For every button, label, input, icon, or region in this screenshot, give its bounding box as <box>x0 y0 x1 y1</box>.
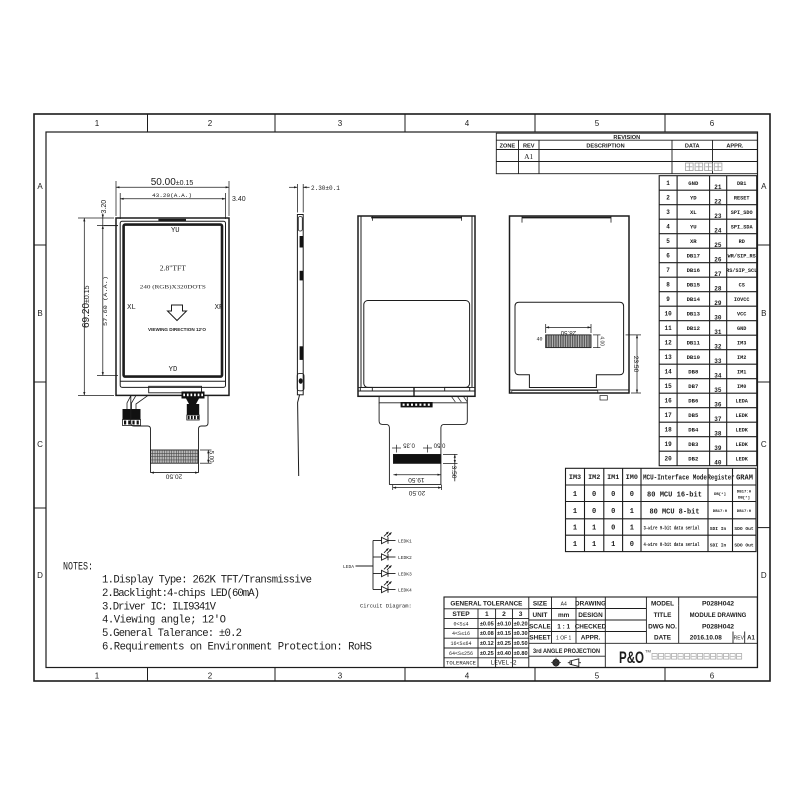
svg-text:3.50: 3.50 <box>450 466 457 479</box>
svg-text:19.50: 19.50 <box>408 476 425 483</box>
svg-text:DB17:0: DB17:0 <box>737 510 752 514</box>
svg-text:B: B <box>37 309 42 318</box>
svg-text:0: 0 <box>611 491 615 499</box>
svg-text:1: 1 <box>573 541 577 549</box>
svg-text:4: 4 <box>465 672 470 681</box>
svg-text:1: 1 <box>95 119 100 128</box>
svg-text:16<S≤64: 16<S≤64 <box>450 641 471 647</box>
svg-text:2: 2 <box>208 672 213 681</box>
svg-text:8: 8 <box>666 282 670 289</box>
svg-text:20: 20 <box>664 456 672 463</box>
svg-text:5: 5 <box>666 238 670 245</box>
svg-text:36: 36 <box>714 402 722 409</box>
svg-text:DB1: DB1 <box>737 181 746 187</box>
svg-text:1: 1 <box>630 525 634 533</box>
svg-text:DB10: DB10 <box>687 354 701 361</box>
svg-text:38: 38 <box>714 431 722 438</box>
svg-text:1: 1 <box>573 491 577 499</box>
svg-text:DB17:0: DB17:0 <box>713 510 728 514</box>
svg-text:1: 1 <box>485 611 489 618</box>
svg-text:IM0: IM0 <box>737 384 746 390</box>
svg-text:3: 3 <box>519 611 523 618</box>
svg-text:LEDK: LEDK <box>735 427 748 433</box>
svg-text:2.Backlight:4-chips LED(60mA): 2.Backlight:4-chips LED(60mA) <box>102 588 260 600</box>
svg-text:SCALE: SCALE <box>529 623 551 630</box>
svg-text:DATA: DATA <box>685 143 700 149</box>
svg-text:37: 37 <box>714 416 722 423</box>
svg-text:40: 40 <box>536 337 542 343</box>
svg-text:1 : 1: 1 : 1 <box>557 623 570 630</box>
svg-text:35: 35 <box>714 387 722 394</box>
svg-text:SIZE: SIZE <box>533 601 548 608</box>
svg-text:XL: XL <box>127 304 136 312</box>
svg-text:CS: CS <box>739 282 745 288</box>
svg-text:P028H042: P028H042 <box>702 601 734 608</box>
svg-text:30: 30 <box>714 315 722 322</box>
svg-text:±0.50: ±0.50 <box>514 641 528 647</box>
svg-text:YU: YU <box>171 227 180 235</box>
svg-text:4.Viewing angle; 12'O: 4.Viewing angle; 12'O <box>102 615 226 627</box>
svg-text:±0.80: ±0.80 <box>514 651 528 657</box>
svg-text:IM3: IM3 <box>569 474 581 482</box>
svg-text:26: 26 <box>714 257 722 264</box>
svg-text:XR: XR <box>215 304 224 312</box>
svg-text:NOTES:: NOTES: <box>63 562 93 574</box>
svg-text:13: 13 <box>664 354 672 361</box>
svg-text:YD: YD <box>169 366 178 374</box>
svg-text:P028H042: P028H042 <box>702 623 734 630</box>
svg-text:23: 23 <box>714 213 722 220</box>
svg-text:DB4: DB4 <box>688 426 699 433</box>
svg-text:0: 0 <box>630 541 634 549</box>
svg-text:3: 3 <box>666 209 670 216</box>
svg-text:5.00: 5.00 <box>207 451 213 463</box>
svg-text:DB6: DB6 <box>688 397 699 404</box>
svg-text:±0.30: ±0.30 <box>514 631 528 637</box>
svg-text:DB12: DB12 <box>687 325 701 332</box>
svg-text:28.50: 28.50 <box>560 329 576 336</box>
svg-text:0<S≤4: 0<S≤4 <box>453 621 468 627</box>
svg-text:DB13: DB13 <box>687 310 701 317</box>
svg-text:1: 1 <box>666 180 670 187</box>
svg-text:IM3: IM3 <box>737 340 746 346</box>
svg-text:1: 1 <box>611 541 615 549</box>
svg-text:DWG NO.: DWG NO. <box>648 623 677 630</box>
svg-text:20.50: 20.50 <box>408 489 425 496</box>
svg-text:3-wire 9-bit data serial: 3-wire 9-bit data serial <box>644 526 701 532</box>
svg-text:14: 14 <box>664 369 672 376</box>
svg-text:3.Driver IC: ILI9341V: 3.Driver IC: ILI9341V <box>102 601 217 613</box>
svg-text:1: 1 <box>592 541 596 549</box>
svg-text:33: 33 <box>714 358 722 365</box>
svg-text:57.60 (A.A.): 57.60 (A.A.) <box>102 276 109 326</box>
svg-text:IM1: IM1 <box>607 474 619 482</box>
svg-text:±0.15: ±0.15 <box>497 631 511 637</box>
svg-text:MCU-Interface Mode: MCU-Interface Mode <box>643 475 707 483</box>
svg-text:12: 12 <box>664 340 672 347</box>
svg-text:UNIT: UNIT <box>533 612 548 619</box>
svg-text:YD: YD <box>690 194 697 201</box>
svg-text:3.20: 3.20 <box>101 200 108 214</box>
svg-text:1: 1 <box>95 672 100 681</box>
svg-text:DB17:0: DB17:0 <box>737 491 752 495</box>
svg-text:LEDK3: LEDK3 <box>398 571 412 577</box>
svg-text:1.Display Type: 262K TFT/Trans: 1.Display Type: 262K TFT/Transmissive <box>102 575 312 587</box>
svg-text:0: 0 <box>611 525 615 533</box>
svg-text:GND: GND <box>737 326 746 332</box>
svg-text:C: C <box>761 440 767 449</box>
svg-text:DB3: DB3 <box>688 441 699 448</box>
svg-text:±0.12: ±0.12 <box>480 641 494 647</box>
svg-text:4<S≤16: 4<S≤16 <box>452 631 470 637</box>
svg-text:24: 24 <box>714 228 722 235</box>
svg-text:±0.40: ±0.40 <box>497 651 511 657</box>
svg-text:DRAWING: DRAWING <box>575 601 606 608</box>
svg-text:VCC: VCC <box>737 311 746 317</box>
svg-text:0: 0 <box>592 491 596 499</box>
svg-text:0: 0 <box>611 508 615 516</box>
svg-text:SPI_SDA: SPI_SDA <box>731 224 754 230</box>
svg-text:IOVCC: IOVCC <box>734 297 750 303</box>
svg-text:REV: REV <box>523 143 535 149</box>
svg-text:LEDK: LEDK <box>735 442 748 448</box>
svg-text:28: 28 <box>714 286 722 293</box>
svg-text:5.General Talerance: ±0.2: 5.General Talerance: ±0.2 <box>102 628 242 640</box>
svg-text:22: 22 <box>714 199 722 206</box>
svg-text:VIEWING DIRECTION 12’O: VIEWING DIRECTION 12’O <box>148 327 206 332</box>
svg-text:DB11: DB11 <box>687 339 701 346</box>
svg-text:1: 1 <box>573 525 577 533</box>
svg-text:4: 4 <box>666 224 670 231</box>
svg-text:4-wire 8-bit data serial: 4-wire 8-bit data serial <box>644 542 701 548</box>
svg-text:CHECKED: CHECKED <box>575 623 607 630</box>
svg-text:3rd ANGLE PROJECTION: 3rd ANGLE PROJECTION <box>533 648 600 655</box>
svg-text:1 OF 1: 1 OF 1 <box>556 636 572 642</box>
svg-text:2016.10.08: 2016.10.08 <box>690 635 722 642</box>
svg-text:29: 29 <box>714 300 722 307</box>
svg-text:80 MCU 8-bit: 80 MCU 8-bit <box>650 508 700 516</box>
svg-text:DESIGN: DESIGN <box>578 612 603 619</box>
svg-text:LEDA: LEDA <box>735 398 748 404</box>
svg-text:9: 9 <box>666 296 670 303</box>
svg-text:19: 19 <box>664 441 672 448</box>
svg-text:4: 4 <box>465 119 470 128</box>
svg-text:DB5: DB5 <box>688 412 699 419</box>
svg-text:LEDK: LEDK <box>735 413 748 419</box>
svg-text:TOLERANCE: TOLERANCE <box>446 661 476 667</box>
svg-text:LEDA: LEDA <box>343 564 354 570</box>
svg-text:DB16: DB16 <box>687 267 701 274</box>
svg-text:SDO Out: SDO Out <box>734 542 754 548</box>
svg-text:2.8"TFT: 2.8"TFT <box>160 264 186 273</box>
svg-text:MODULE DRAWING: MODULE DRAWING <box>690 613 747 619</box>
svg-text:DB2: DB2 <box>688 455 699 462</box>
svg-text:10: 10 <box>664 311 672 318</box>
svg-text:IM2: IM2 <box>737 355 746 361</box>
svg-text:64<S≤256: 64<S≤256 <box>449 651 473 657</box>
svg-text:D: D <box>761 571 767 580</box>
svg-text:LEDK2: LEDK2 <box>398 555 412 561</box>
svg-text:APPR.: APPR. <box>726 143 744 149</box>
svg-text:LEDK4: LEDK4 <box>398 587 412 593</box>
svg-text:31: 31 <box>714 329 722 336</box>
svg-text:2: 2 <box>208 119 213 128</box>
svg-text:DB8: DB8 <box>688 368 699 375</box>
svg-text:RS/SIP_SCL: RS/SIP_SCL <box>726 268 757 274</box>
svg-text:3: 3 <box>338 672 343 681</box>
svg-text:23.50: 23.50 <box>632 356 639 373</box>
svg-text:Register: Register <box>708 475 735 483</box>
svg-text:16: 16 <box>664 398 672 405</box>
svg-text:XR: XR <box>690 238 697 245</box>
svg-text:SHEET: SHEET <box>529 635 550 642</box>
svg-text:A: A <box>37 182 43 191</box>
svg-text:0.50: 0.50 <box>433 442 445 448</box>
svg-text:240 (RGB)X320DOTS: 240 (RGB)X320DOTS <box>140 284 206 291</box>
svg-text:DB14: DB14 <box>687 296 701 303</box>
svg-text:27: 27 <box>714 271 722 278</box>
svg-text:32: 32 <box>714 344 722 351</box>
svg-text:TM: TM <box>645 649 651 654</box>
svg-text:RD: RD <box>739 239 745 245</box>
svg-text:IM0: IM0 <box>626 474 638 482</box>
svg-text:SPI_SDO: SPI_SDO <box>731 210 753 216</box>
svg-text:6: 6 <box>666 253 670 260</box>
svg-text:2: 2 <box>666 195 670 202</box>
svg-text:±0.05: ±0.05 <box>480 621 494 627</box>
svg-text:25: 25 <box>714 242 722 249</box>
svg-text:RESET: RESET <box>734 195 750 201</box>
svg-text:GND: GND <box>688 180 699 187</box>
svg-text:LEDK: LEDK <box>735 456 748 462</box>
svg-text:APPR.: APPR. <box>581 635 601 642</box>
svg-text:A1: A1 <box>747 636 755 642</box>
svg-text:17: 17 <box>664 412 672 419</box>
svg-text:Circuit Diagram:: Circuit Diagram: <box>360 604 412 610</box>
svg-text:B: B <box>761 309 766 318</box>
svg-text:SDI In: SDI In <box>710 526 727 532</box>
svg-text:4.00: 4.00 <box>599 336 605 346</box>
svg-text:YU: YU <box>690 223 697 230</box>
svg-text:IM1: IM1 <box>737 369 746 375</box>
svg-text:SDO Out: SDO Out <box>734 526 754 532</box>
svg-text:A1: A1 <box>524 152 533 161</box>
svg-text:11: 11 <box>664 325 672 332</box>
svg-text:39: 39 <box>714 445 722 452</box>
svg-text:1: 1 <box>592 525 596 533</box>
svg-text:DB7: DB7 <box>688 383 698 390</box>
svg-text:REVISION: REVISION <box>613 135 640 141</box>
svg-text:SDI In: SDI In <box>710 542 727 548</box>
svg-text:XL: XL <box>690 209 697 216</box>
svg-text:ZONE: ZONE <box>500 143 516 149</box>
svg-text:80 MCU 16-bit: 80 MCU 16-bit <box>647 492 702 500</box>
svg-text:WR/SIP_RS: WR/SIP_RS <box>728 253 756 259</box>
svg-text:40: 40 <box>714 460 722 467</box>
svg-text:1: 1 <box>573 508 577 516</box>
svg-text:21: 21 <box>714 184 722 191</box>
svg-text:43.20(A.A.): 43.20(A.A.) <box>152 192 192 199</box>
svg-text:3: 3 <box>338 119 343 128</box>
svg-text:GRAM: GRAM <box>736 475 753 483</box>
svg-text:DESCRIPTION: DESCRIPTION <box>586 143 624 149</box>
svg-text:±0.20: ±0.20 <box>514 621 528 627</box>
svg-text:DB15: DB15 <box>687 281 701 288</box>
svg-text:7: 7 <box>666 267 670 274</box>
svg-text:5: 5 <box>595 672 600 681</box>
svg-text:±0.08: ±0.08 <box>480 631 494 637</box>
svg-text:mm: mm <box>558 612 570 619</box>
svg-text:DB17: DB17 <box>687 252 700 259</box>
svg-text:5: 5 <box>595 119 600 128</box>
svg-text:TITLE: TITLE <box>654 612 672 619</box>
svg-text:P&O: P&O <box>619 648 644 667</box>
svg-text:LEDK1: LEDK1 <box>398 538 412 544</box>
svg-text:C: C <box>37 440 43 449</box>
svg-text:0: 0 <box>630 491 634 499</box>
svg-text:20.50: 20.50 <box>165 472 182 479</box>
svg-text:D: D <box>37 571 43 580</box>
svg-text:A4: A4 <box>561 602 567 608</box>
svg-text:±0.10: ±0.10 <box>497 621 511 627</box>
svg-text:LEVEL-2: LEVEL-2 <box>491 660 517 667</box>
svg-text:2.30±0.1: 2.30±0.1 <box>311 185 340 192</box>
svg-text:STEP: STEP <box>452 611 470 618</box>
svg-text:DATE: DATE <box>654 635 672 642</box>
svg-text:6: 6 <box>710 119 715 128</box>
svg-text:1: 1 <box>630 508 634 516</box>
svg-text:18: 18 <box>664 427 672 434</box>
svg-text:15: 15 <box>664 383 672 390</box>
svg-text:3.40: 3.40 <box>232 196 246 203</box>
svg-text:REV: REV <box>734 636 745 642</box>
svg-text:±0.25: ±0.25 <box>480 651 494 657</box>
svg-text:IM2: IM2 <box>588 474 600 482</box>
svg-text:6.Requirements on Environment: 6.Requirements on Environment Protection… <box>102 642 372 654</box>
svg-text:DB[*]: DB[*] <box>714 492 726 497</box>
svg-text:2: 2 <box>502 611 506 618</box>
svg-text:6: 6 <box>710 672 715 681</box>
svg-text:±0.25: ±0.25 <box>497 641 511 647</box>
svg-text:DB[*]: DB[*] <box>738 496 750 501</box>
svg-text:MODEL: MODEL <box>651 601 674 608</box>
svg-text:0.35: 0.35 <box>403 442 415 448</box>
svg-text:A: A <box>761 182 767 191</box>
svg-text:GENERAL TOLERANCE: GENERAL TOLERANCE <box>450 601 522 608</box>
svg-text:0: 0 <box>592 508 596 516</box>
svg-text:34: 34 <box>714 373 722 380</box>
